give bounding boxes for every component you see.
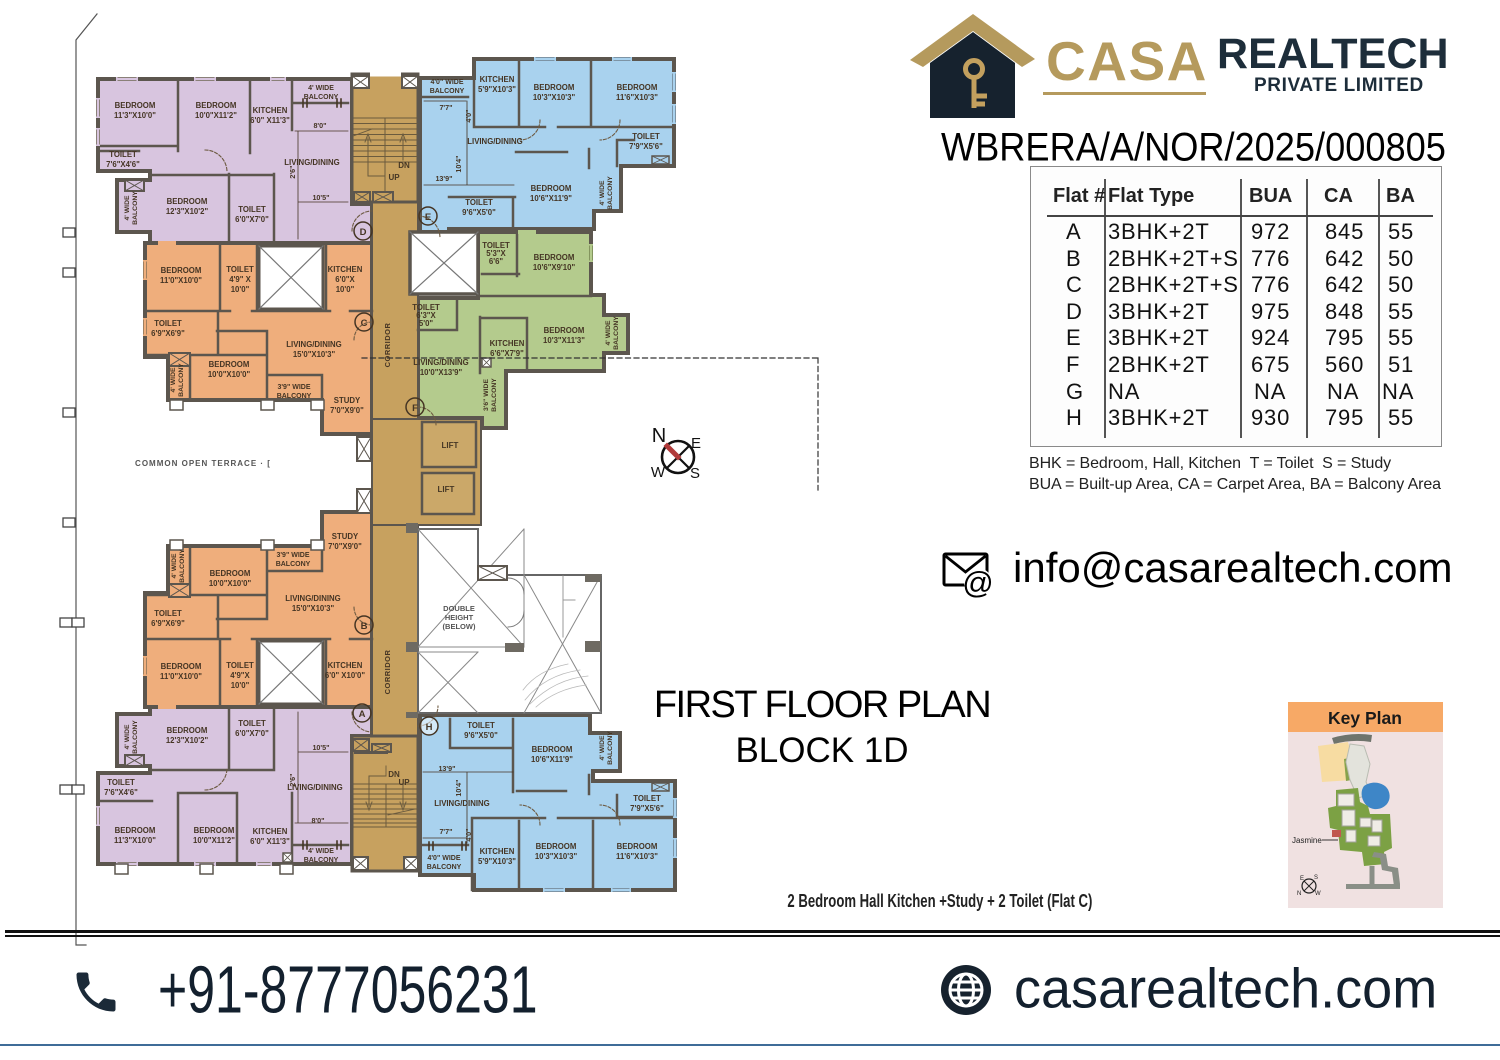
svg-text:N: N [652,425,666,447]
svg-text:9'6"X5'0": 9'6"X5'0" [464,731,498,740]
svg-text:DOUBLE: DOUBLE [443,604,475,613]
svg-text:4' WIDE: 4' WIDE [599,735,606,760]
svg-text:KITCHEN: KITCHEN [328,661,363,670]
svg-text:N: N [1297,891,1301,897]
svg-text:CORRIDOR: CORRIDOR [383,323,392,368]
svg-text:BALCONY: BALCONY [304,94,339,101]
svg-text:10'6"X11'9": 10'6"X11'9" [531,755,573,764]
svg-text:12'3"X10'2": 12'3"X10'2" [166,207,209,216]
svg-text:10'0"X10'0": 10'0"X10'0" [209,579,252,588]
svg-text:BALCONY: BALCONY [430,88,465,95]
svg-text:BEDROOM: BEDROOM [536,842,577,851]
svg-text:BALCONY: BALCONY [427,864,462,871]
svg-text:13'9": 13'9" [438,764,455,773]
svg-text:TOILET: TOILET [467,721,495,730]
svg-text:BALCONY: BALCONY [132,720,139,754]
svg-text:11'6"X10'3": 11'6"X10'3" [616,852,658,861]
svg-text:LIFT: LIFT [442,441,459,450]
svg-text:HEIGHT: HEIGHT [445,613,474,622]
svg-text:TOILET: TOILET [465,198,493,207]
svg-text:KITCHEN: KITCHEN [490,339,525,348]
svg-text:10'0"X13'9": 10'0"X13'9" [420,368,463,377]
svg-text:LIVING/DINING: LIVING/DINING [467,137,522,146]
svg-text:3'9" WIDE: 3'9" WIDE [278,384,311,391]
svg-text:BALCONY: BALCONY [179,549,186,583]
svg-text:11'3"X10'0": 11'3"X10'0" [114,836,156,845]
svg-text:C: C [361,318,368,329]
svg-text:BEDROOM: BEDROOM [531,184,572,193]
svg-text:7'0"X9'0": 7'0"X9'0" [328,542,362,551]
svg-text:KITCHEN: KITCHEN [480,75,515,84]
svg-text:BEDROOM: BEDROOM [532,745,573,754]
svg-text:4' WIDE: 4' WIDE [308,848,334,855]
svg-text:BEDROOM: BEDROOM [617,842,658,851]
svg-text:BEDROOM: BEDROOM [534,83,575,92]
svg-text:11'3"X10'0": 11'3"X10'0" [114,111,156,120]
svg-text:11'0"X10'0": 11'0"X10'0" [160,672,202,681]
svg-text:CORRIDOR: CORRIDOR [383,650,392,695]
svg-text:LIFT: LIFT [438,485,455,494]
svg-text:BALCONY: BALCONY [613,316,620,350]
svg-text:Jasmine: Jasmine [1292,836,1322,845]
svg-text:B: B [361,621,368,632]
svg-text:3'6" WIDE: 3'6" WIDE [483,379,490,411]
svg-text:TOILET: TOILET [226,265,254,274]
svg-text:BEDROOM: BEDROOM [544,326,585,335]
svg-text:BEDROOM: BEDROOM [161,266,202,275]
svg-text:6'9"X6'9": 6'9"X6'9" [151,619,185,628]
svg-text:BALCONY: BALCONY [132,191,139,225]
svg-text:LIVING/DINING: LIVING/DINING [286,340,341,349]
svg-text:E: E [425,212,431,223]
svg-text:7'9"X5'6": 7'9"X5'6" [630,804,664,813]
svg-text:BALCONY: BALCONY [178,363,185,397]
svg-text:2'6": 2'6" [288,773,297,786]
svg-text:TOILET: TOILET [238,719,266,728]
svg-text:13'9": 13'9" [435,174,452,183]
svg-text:8'0": 8'0" [311,816,324,825]
svg-text:10'0": 10'0" [231,681,250,690]
svg-text:TOILET: TOILET [238,205,266,214]
svg-text:5'9"X10'3": 5'9"X10'3" [478,857,516,866]
svg-text:BALCONY: BALCONY [607,176,614,210]
svg-text:(BELOW): (BELOW) [443,622,476,631]
svg-text:10'5": 10'5" [312,743,329,752]
svg-text:BALCONY: BALCONY [491,378,498,412]
svg-text:10'4": 10'4" [454,779,463,796]
svg-text:S: S [690,465,700,482]
svg-text:BALCONY: BALCONY [607,731,614,765]
svg-text:9'6"X5'0": 9'6"X5'0" [462,208,496,217]
svg-text:BALCONY: BALCONY [276,561,311,568]
svg-text:@: @ [962,565,993,599]
svg-text:10'0"X11'2": 10'0"X11'2" [195,111,237,120]
svg-text:7'9"X5'6": 7'9"X5'6" [629,142,663,151]
svg-text:BEDROOM: BEDROOM [534,253,575,262]
svg-text:4'0": 4'0" [464,109,473,122]
svg-text:7'6"X4'6": 7'6"X4'6" [104,788,138,797]
svg-text:6'0" X11'3": 6'0" X11'3" [250,116,290,125]
svg-text:10'6"X11'9": 10'6"X11'9" [530,194,572,203]
svg-text:KITCHEN: KITCHEN [480,847,515,856]
svg-text:KITCHEN: KITCHEN [328,265,363,274]
svg-text:H: H [426,722,433,733]
svg-text:4'9"X: 4'9"X [230,671,250,680]
svg-text:4' WIDE: 4' WIDE [171,553,178,578]
svg-text:TOILET: TOILET [154,319,182,328]
svg-text:TOILET: TOILET [109,150,137,159]
svg-text:STUDY: STUDY [332,532,359,541]
svg-text:COMMON OPEN TERRACE · [: COMMON OPEN TERRACE · [ [135,459,271,468]
svg-text:STUDY: STUDY [334,396,361,405]
svg-text:4' WIDE: 4' WIDE [170,367,177,392]
svg-text:10'3"X11'3": 10'3"X11'3" [543,336,585,345]
svg-text:5'0": 5'0" [419,319,434,328]
svg-text:3'9" WIDE: 3'9" WIDE [277,552,310,559]
svg-text:7'7": 7'7" [439,827,452,836]
svg-text:E: E [691,435,701,452]
svg-text:4' WIDE: 4' WIDE [308,85,334,92]
svg-text:KITCHEN: KITCHEN [253,827,288,836]
svg-text:6'0" X10'0": 6'0" X10'0" [325,671,365,680]
svg-text:10'4": 10'4" [454,155,463,172]
svg-text:6'0"X7'0": 6'0"X7'0" [235,729,269,738]
svg-text:BEDROOM: BEDROOM [167,197,208,206]
svg-text:12'3"X10'2": 12'3"X10'2" [166,736,209,745]
svg-text:BEDROOM: BEDROOM [115,826,156,835]
svg-text:LIVING/DINING: LIVING/DINING [434,799,489,808]
svg-text:4' WIDE: 4' WIDE [599,180,606,205]
svg-text:6'0" X11'3": 6'0" X11'3" [250,837,290,846]
svg-text:BEDROOM: BEDROOM [196,101,237,110]
svg-text:TOILET: TOILET [633,794,661,803]
svg-text:BEDROOM: BEDROOM [210,569,251,578]
svg-text:TOILET: TOILET [107,778,135,787]
svg-text:LIVING/DINING: LIVING/DINING [413,358,468,367]
svg-text:TOILET: TOILET [154,609,182,618]
svg-text:4'0" WIDE: 4'0" WIDE [431,79,464,86]
svg-text:4' WIDE: 4' WIDE [605,320,612,345]
svg-text:10'5": 10'5" [312,193,329,202]
svg-text:6'6"X7'9": 6'6"X7'9" [490,349,524,358]
svg-text:D: D [360,227,367,238]
svg-text:UP: UP [398,778,410,787]
svg-text:10'0": 10'0" [231,285,250,294]
svg-text:11'0"X10'0": 11'0"X10'0" [160,276,202,285]
svg-text:Key Plan: Key Plan [1328,708,1402,728]
svg-text:LIVING/DINING: LIVING/DINING [285,594,340,603]
svg-text:15'0"X10'3": 15'0"X10'3" [292,604,335,613]
svg-text:7'0"X9'0": 7'0"X9'0" [330,406,364,415]
svg-text:W: W [1315,891,1321,897]
svg-text:BEDROOM: BEDROOM [167,726,208,735]
svg-text:4'0": 4'0" [464,828,473,841]
svg-text:8'0": 8'0" [313,121,326,130]
svg-text:10'3"X10'3": 10'3"X10'3" [535,852,578,861]
svg-text:15'0"X10'3": 15'0"X10'3" [293,350,336,359]
svg-text:6'0"X: 6'0"X [335,275,355,284]
svg-text:S: S [1314,875,1318,881]
svg-text:TOILET: TOILET [226,661,254,670]
svg-text:4'9" X: 4'9" X [229,275,251,284]
svg-text:4' WIDE: 4' WIDE [124,724,131,749]
svg-text:A: A [359,709,366,720]
svg-text:11'6"X10'3": 11'6"X10'3" [616,93,658,102]
svg-text:4'0" WIDE: 4'0" WIDE [428,855,461,862]
svg-text:7'7": 7'7" [439,103,452,112]
svg-text:BEDROOM: BEDROOM [209,360,250,369]
svg-text:E: E [1300,876,1304,882]
svg-text:6'6": 6'6" [489,257,504,266]
svg-text:KITCHEN: KITCHEN [253,106,288,115]
svg-text:BEDROOM: BEDROOM [161,662,202,671]
svg-text:UP: UP [388,173,400,182]
svg-text:F: F [412,403,418,414]
svg-text:10'0": 10'0" [336,285,355,294]
svg-text:10'0"X11'2": 10'0"X11'2" [193,836,235,845]
svg-text:10'6"X9'10": 10'6"X9'10" [533,263,576,272]
svg-text:TOILET: TOILET [632,132,660,141]
svg-text:DN: DN [398,161,410,170]
svg-text:10'0"X10'0": 10'0"X10'0" [208,370,251,379]
svg-text:BEDROOM: BEDROOM [115,101,156,110]
svg-text:2'6": 2'6" [288,165,297,178]
svg-text:BEDROOM: BEDROOM [617,83,658,92]
svg-text:W: W [651,464,666,481]
svg-text:10'3"X10'3": 10'3"X10'3" [533,93,576,102]
svg-text:BEDROOM: BEDROOM [194,826,235,835]
svg-text:6'0"X7'0": 6'0"X7'0" [235,215,269,224]
svg-text:6'9"X6'9": 6'9"X6'9" [151,329,185,338]
svg-text:BALCONY: BALCONY [304,857,339,864]
svg-text:BALCONY: BALCONY [277,393,312,400]
svg-text:5'9"X10'3": 5'9"X10'3" [478,85,516,94]
svg-text:7'6"X4'6": 7'6"X4'6" [106,160,140,169]
svg-text:4' WIDE: 4' WIDE [124,195,131,220]
